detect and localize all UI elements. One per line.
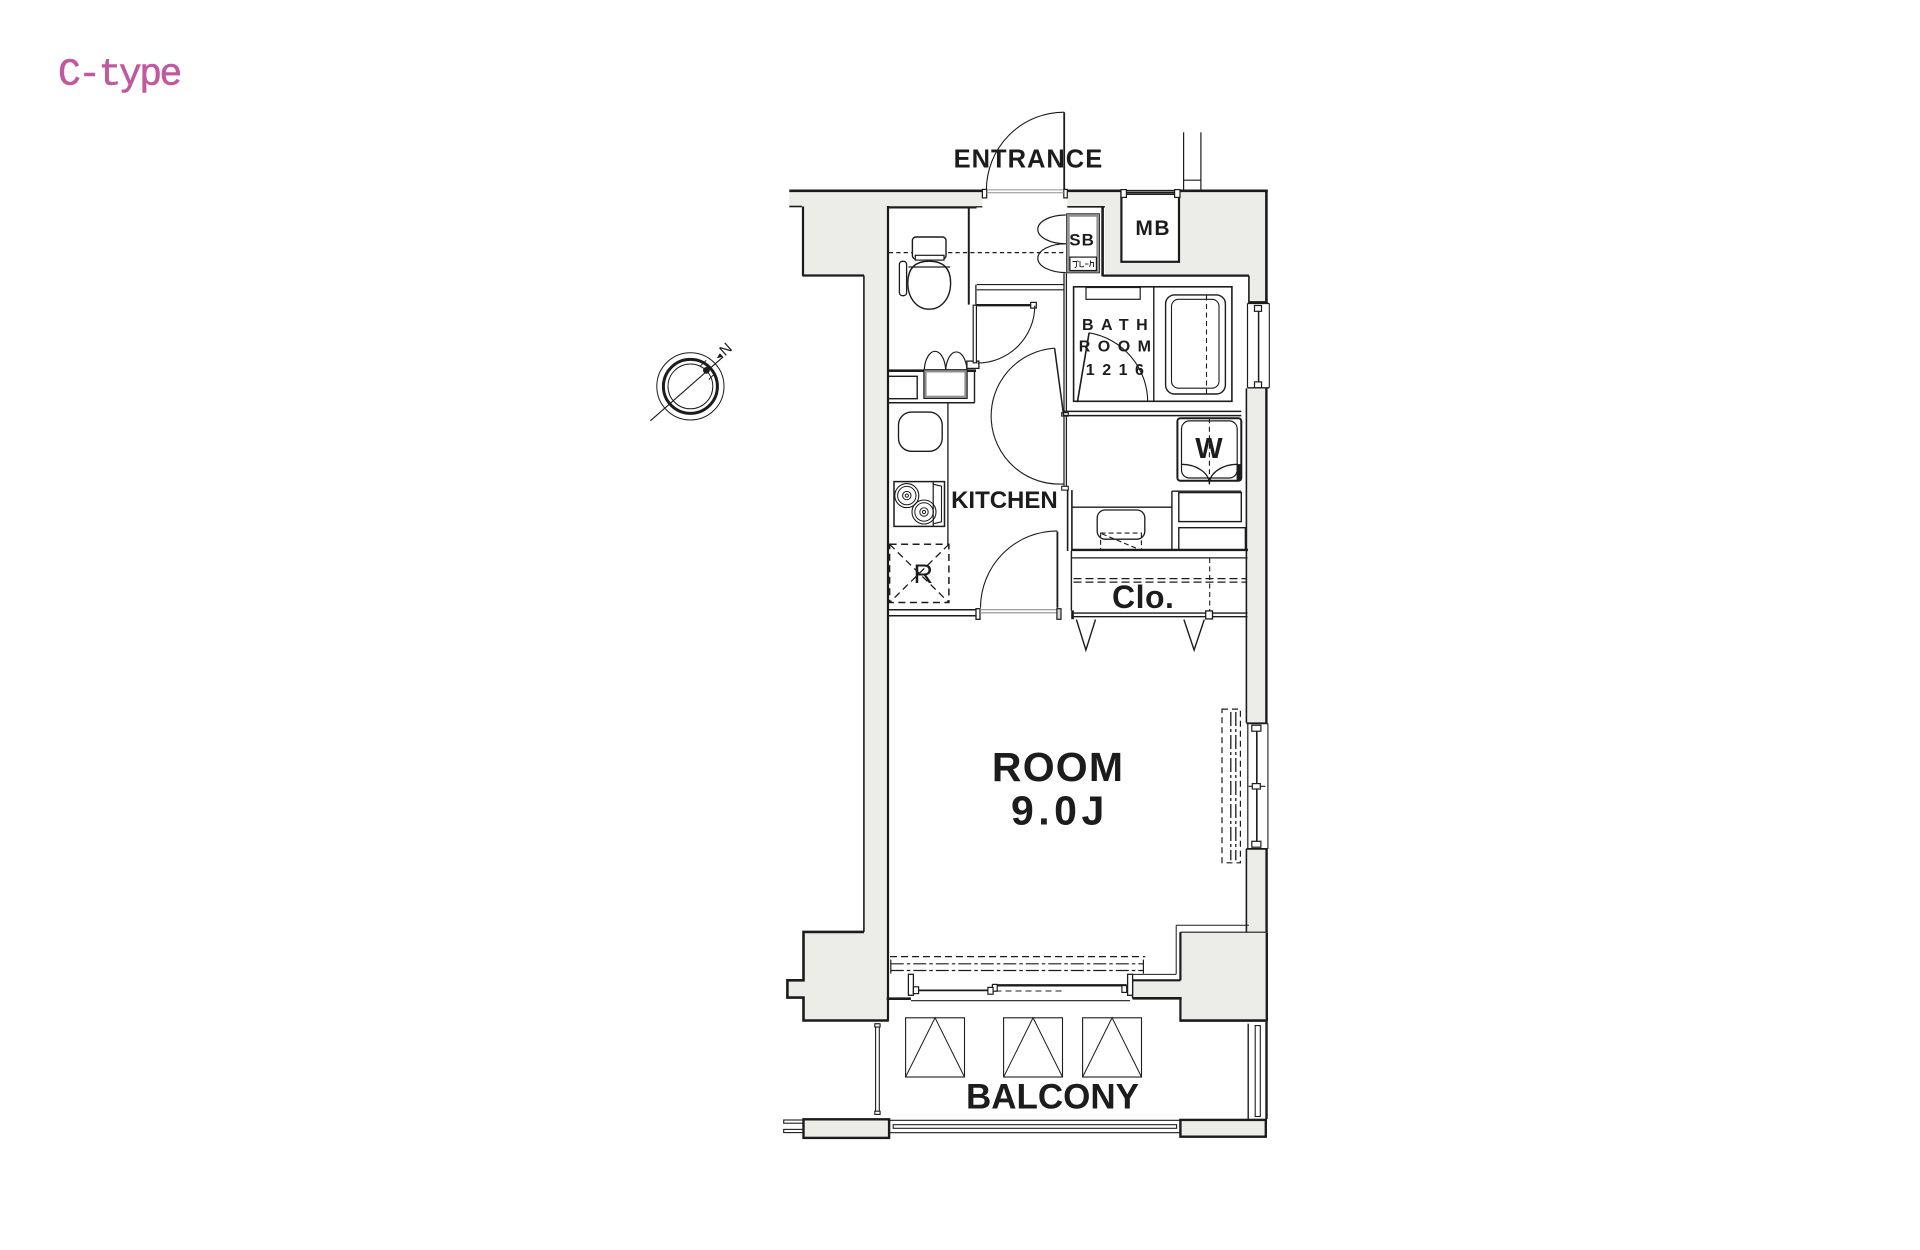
svg-text:W: W (1195, 433, 1223, 465)
svg-text:Clo.: Clo. (1112, 579, 1174, 615)
svg-text:MB: MB (1135, 217, 1171, 240)
svg-text:ROOM: ROOM (1079, 339, 1159, 356)
svg-text:ROOM: ROOM (992, 744, 1124, 790)
svg-text:ENTRANCE: ENTRANCE (954, 146, 1104, 174)
svg-text:SB: SB (1069, 230, 1095, 249)
svg-text:9.0J: 9.0J (1011, 787, 1109, 833)
svg-text:BALCONY: BALCONY (966, 1077, 1139, 1116)
svg-text:1216: 1216 (1086, 362, 1152, 379)
svg-text:C-type: C-type (58, 54, 181, 97)
svg-text:KITCHEN: KITCHEN (951, 487, 1058, 514)
svg-text:R: R (914, 559, 934, 589)
svg-text:BATH: BATH (1082, 317, 1155, 334)
